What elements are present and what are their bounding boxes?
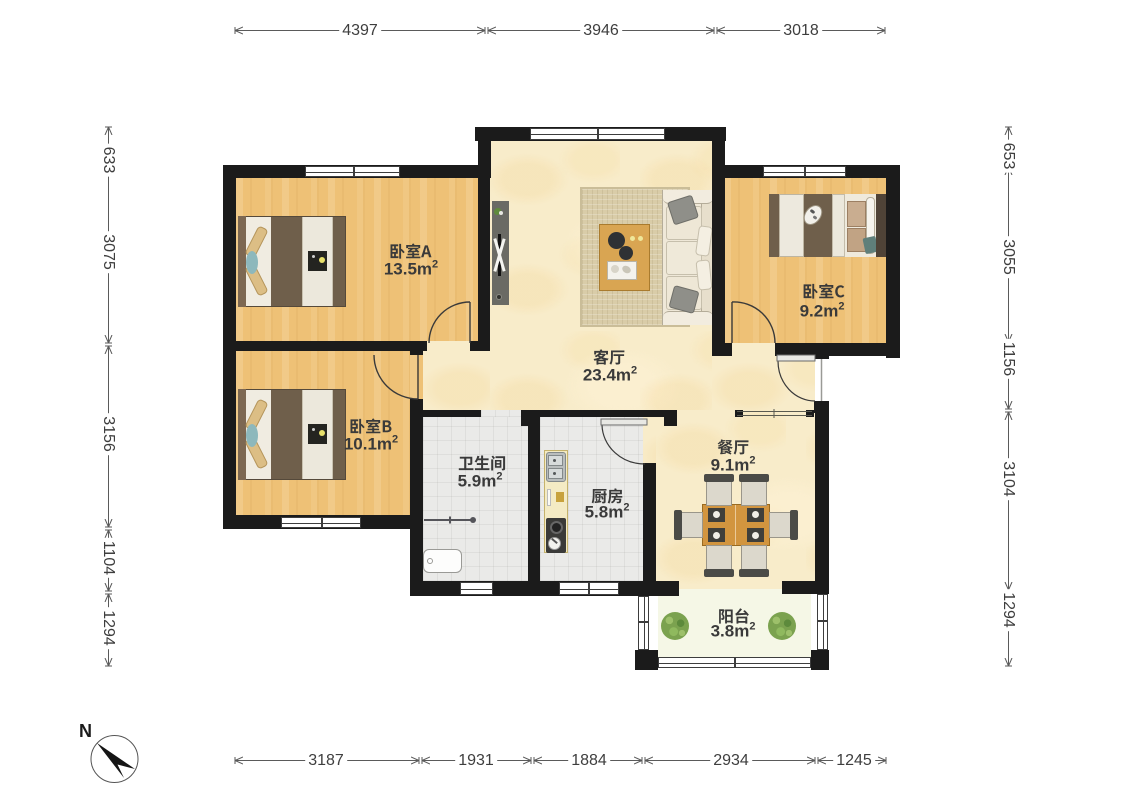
- svg-text:N: N: [79, 721, 92, 741]
